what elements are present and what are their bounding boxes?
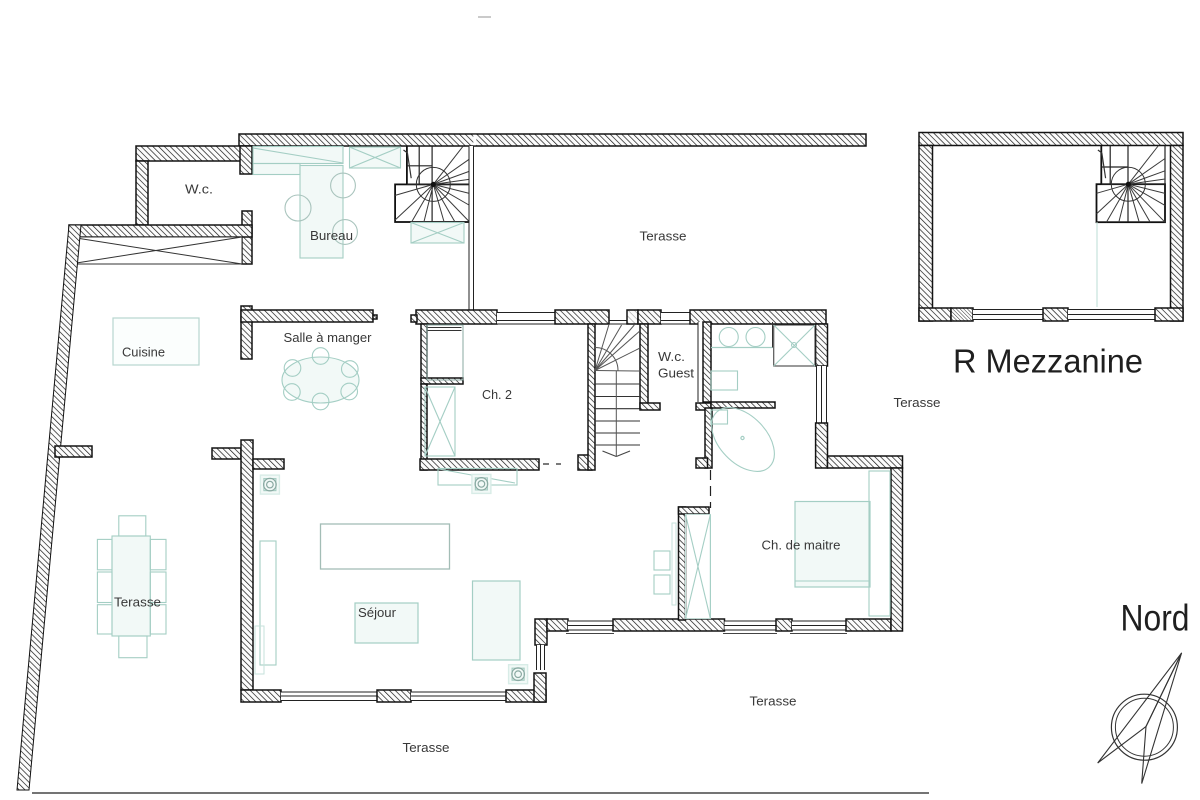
svg-text:Guest: Guest — [658, 366, 694, 381]
svg-text:Cuisine: Cuisine — [122, 345, 165, 360]
svg-text:Terasse: Terasse — [750, 694, 797, 709]
svg-text:Terasse: Terasse — [114, 595, 161, 610]
svg-text:Terasse: Terasse — [403, 740, 450, 755]
svg-text:Terasse: Terasse — [640, 229, 687, 244]
svg-text:Ch. 2: Ch. 2 — [482, 387, 512, 402]
svg-text:Bureau: Bureau — [310, 228, 353, 243]
svg-text:Salle à manger: Salle à manger — [284, 330, 373, 345]
svg-text:W.c.: W.c. — [185, 182, 213, 197]
svg-text:Terasse: Terasse — [894, 395, 941, 410]
svg-text:Séjour: Séjour — [358, 605, 397, 620]
svg-text:W.c.: W.c. — [658, 349, 685, 364]
svg-text:Nord: Nord — [1121, 598, 1190, 639]
svg-text:R Mezzanine: R Mezzanine — [953, 343, 1143, 380]
svg-text:Ch. de maitre: Ch. de maitre — [762, 538, 841, 553]
